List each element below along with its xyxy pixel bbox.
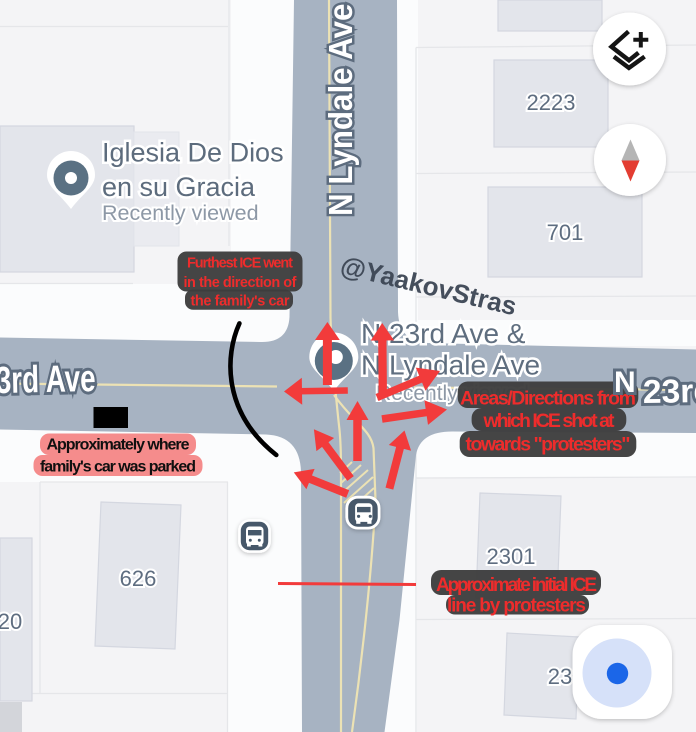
svg-text:in the direction of: in the direction of bbox=[184, 275, 297, 291]
svg-text:Areas/Directions from: Areas/Directions from bbox=[460, 388, 636, 410]
svg-text:line by protesters: line by protesters bbox=[447, 596, 586, 617]
svg-text:N Lyndale Ave: N Lyndale Ave bbox=[361, 350, 540, 381]
svg-text:Approximately where: Approximately where bbox=[47, 437, 190, 454]
svg-text:Furthest ICE went: Furthest ICE went bbox=[187, 256, 293, 272]
svg-text:family's car was parked: family's car was parked bbox=[40, 459, 196, 476]
svg-text:N 23rd Ave: N 23rd Ave bbox=[0, 358, 96, 403]
svg-text:N Lyndale Ave: N Lyndale Ave bbox=[322, 4, 359, 216]
svg-text:Recently viewed: Recently viewed bbox=[102, 201, 259, 225]
svg-text:which ICE shot at: which ICE shot at bbox=[483, 410, 616, 432]
svg-text:20: 20 bbox=[0, 609, 22, 634]
svg-text:2223: 2223 bbox=[527, 90, 576, 115]
svg-text:23rd: 23rd bbox=[642, 373, 696, 411]
svg-text:en su Gracia: en su Gracia bbox=[102, 172, 256, 202]
svg-text:Approximate initial ICE: Approximate initial ICE bbox=[436, 575, 597, 596]
svg-text:towards "protesters": towards "protesters" bbox=[466, 434, 631, 456]
svg-text:the family's car: the family's car bbox=[191, 294, 290, 310]
svg-text:Iglesia De Dios: Iglesia De Dios bbox=[102, 138, 284, 168]
svg-text:2301: 2301 bbox=[487, 544, 536, 569]
svg-text:23: 23 bbox=[548, 664, 572, 689]
svg-text:N: N bbox=[614, 366, 636, 399]
svg-text:626: 626 bbox=[120, 566, 157, 591]
svg-text:701: 701 bbox=[547, 220, 584, 245]
